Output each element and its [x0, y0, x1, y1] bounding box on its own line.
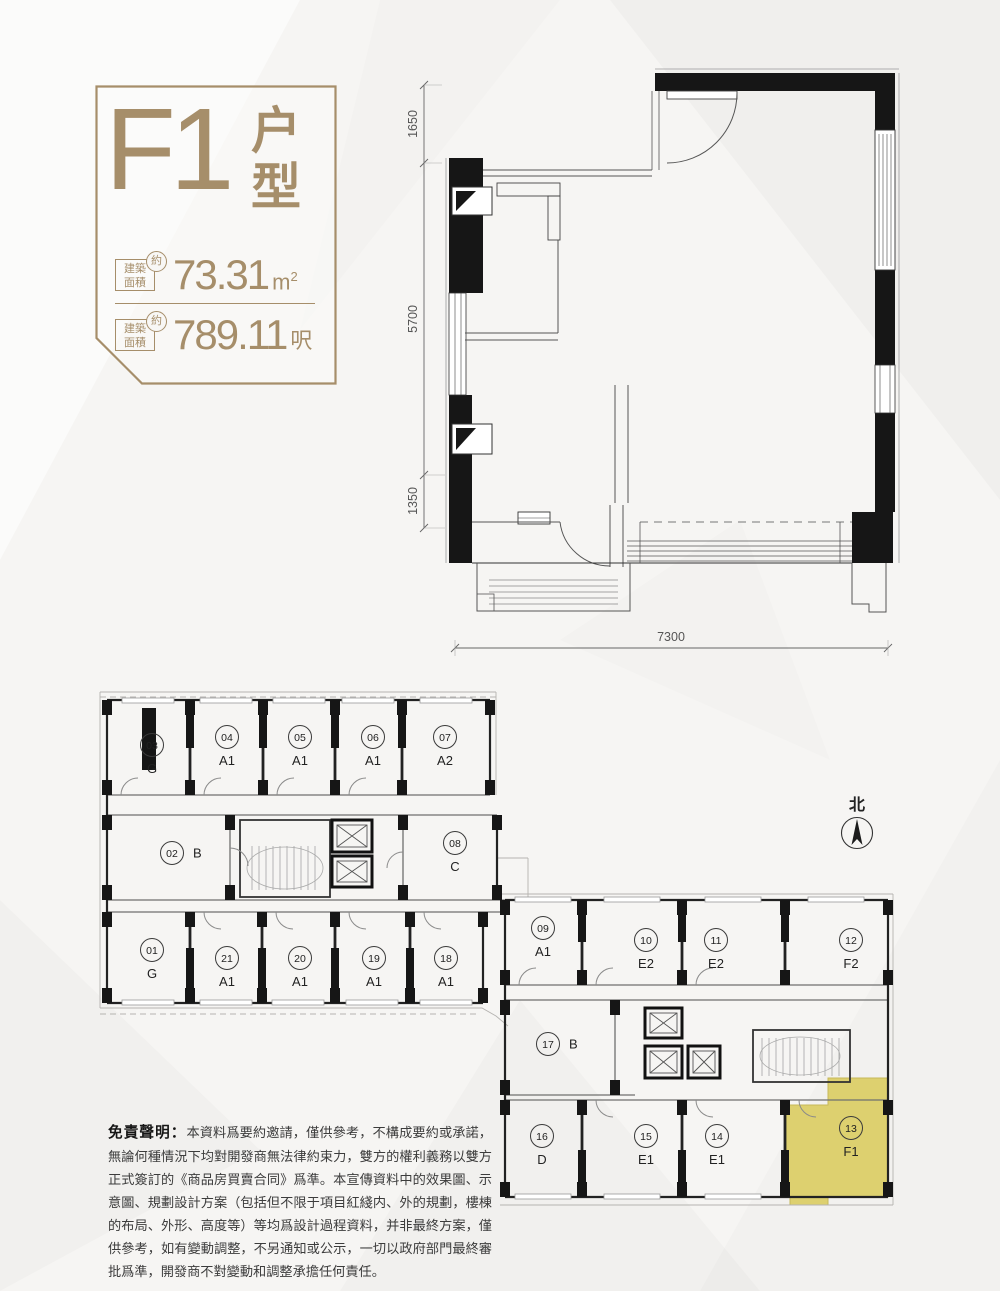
unit-label-12: 12F2 [840, 929, 863, 972]
svg-text:北: 北 [849, 796, 865, 814]
unit-label-21: 21A1 [216, 947, 239, 990]
svg-text:G: G [147, 966, 157, 981]
unit-label-01: 01G [141, 939, 164, 982]
area-row-imperial: 建築 面積 約 789.11 呎 [115, 311, 319, 359]
structural-walls [449, 73, 895, 563]
unit-floorplan: 1650 5700 1350 7300 [405, 60, 915, 660]
svg-text:D: D [537, 1152, 546, 1167]
svg-text:01: 01 [146, 945, 158, 957]
unit-label-17: 17B [537, 1033, 578, 1056]
unit-type-char-1: 户 [251, 103, 301, 159]
svg-text:09: 09 [537, 923, 549, 935]
svg-text:F1: F1 [843, 1144, 858, 1159]
svg-text:20: 20 [294, 953, 306, 965]
highlighted-unit-area [785, 1078, 888, 1205]
unit-label-04: 04A1 [216, 726, 239, 769]
area-divider [115, 303, 315, 304]
svg-text:C: C [450, 859, 459, 874]
svg-text:12: 12 [845, 935, 857, 947]
svg-text:A1: A1 [366, 974, 382, 989]
balcony-glazing [472, 522, 852, 563]
unit-label-02: 02B [161, 842, 202, 865]
svg-text:03: 03 [146, 740, 158, 752]
north-arrow: 北 [842, 796, 873, 849]
unit-label-10: 10E2 [635, 929, 658, 972]
svg-text:05: 05 [294, 732, 306, 744]
svg-text:A2: A2 [437, 753, 453, 768]
dim-bottom-7300: 7300 [657, 630, 685, 644]
svg-text:E2: E2 [638, 956, 654, 971]
area-label-box-2: 建築 面積 約 [115, 319, 155, 351]
svg-text:02: 02 [166, 848, 178, 860]
unit-label-07: 07A2 [434, 726, 457, 769]
svg-text:A1: A1 [219, 753, 235, 768]
disclaimer-body: 本資料爲要約邀請，僅供參考，不構成要約或承諾，無論何種情況下均對開發商無法律約束… [108, 1125, 492, 1279]
dimension-lines [420, 81, 892, 656]
svg-text:A1: A1 [365, 753, 381, 768]
dimension-labels: 1650 5700 1350 7300 [406, 110, 685, 644]
svg-text:04: 04 [221, 732, 233, 744]
svg-text:A1: A1 [292, 753, 308, 768]
svg-text:E1: E1 [709, 1152, 725, 1167]
ac-platform [477, 563, 886, 612]
svg-text:14: 14 [711, 1131, 723, 1143]
area-label-box: 建築 面積 約 [115, 259, 155, 291]
svg-text:13: 13 [845, 1123, 857, 1135]
svg-text:E1: E1 [638, 1152, 654, 1167]
svg-text:06: 06 [367, 732, 379, 744]
unit-name: F1 [105, 91, 228, 207]
windows [449, 130, 895, 524]
unit-label-20: 20A1 [289, 947, 312, 990]
area-label-line2: 面積 [116, 276, 154, 290]
outer-face-lines [446, 69, 899, 563]
svg-text:08: 08 [449, 838, 461, 850]
unit-label-08: 08C [444, 832, 467, 875]
svg-text:07: 07 [439, 732, 451, 744]
svg-text:15: 15 [640, 1131, 652, 1143]
title-block: F1 户 型 建築 面積 約 73.31 m2 建築 面積 約 789.11 呎 [95, 85, 337, 385]
area-row-metric: 建築 面積 約 73.31 m2 [115, 251, 319, 299]
interior-partitions [465, 170, 652, 567]
disclaimer-heading: 免責聲明： [108, 1125, 186, 1141]
approx-badge: 約 [146, 251, 167, 272]
unit-label-06: 06A1 [362, 726, 385, 769]
dim-left-5700: 5700 [406, 305, 420, 333]
entry-door [652, 91, 737, 170]
bedroom-door-arc [560, 522, 610, 566]
unit-label-05: 05A1 [289, 726, 312, 769]
svg-text:21: 21 [221, 953, 233, 965]
svg-text:B: B [193, 846, 202, 861]
svg-text:19: 19 [368, 953, 380, 965]
area-label-line2: 面積 [116, 336, 154, 350]
unit-label-11: 11E2 [705, 929, 728, 972]
svg-text:16: 16 [536, 1131, 548, 1143]
svg-text:17: 17 [542, 1039, 554, 1051]
svg-text:A1: A1 [438, 974, 454, 989]
unit-label-16: 16D [531, 1125, 554, 1168]
svg-text:10: 10 [640, 935, 652, 947]
unit-label-19: 19A1 [363, 947, 386, 990]
unit-label-14: 14E1 [706, 1125, 729, 1168]
svg-text:A1: A1 [219, 974, 235, 989]
svg-text:G: G [147, 761, 157, 776]
unit-label-09: 09A1 [532, 917, 555, 960]
unit-label-18: 18A1 [435, 947, 458, 990]
svg-text:A1: A1 [292, 974, 308, 989]
unit-label-15: 15E1 [635, 1125, 658, 1168]
svg-text:A1: A1 [535, 944, 551, 959]
svg-text:B: B [569, 1037, 578, 1052]
approx-badge-2: 約 [146, 311, 167, 332]
dim-left-1650: 1650 [406, 110, 420, 138]
unit-type-label: 户 型 [251, 103, 301, 215]
unit-type-char-2: 型 [251, 159, 301, 215]
svg-text:E2: E2 [708, 956, 724, 971]
area-value-imperial: 789.11 [173, 311, 286, 359]
svg-text:11: 11 [711, 935, 722, 947]
dim-left-1350: 1350 [406, 487, 420, 515]
svg-text:18: 18 [440, 953, 452, 965]
page: F1 户 型 建築 面積 約 73.31 m2 建築 面積 約 789.11 呎 [0, 0, 1000, 1291]
area-value-metric: 73.31 [173, 251, 268, 299]
area-unit-metric: m2 [272, 269, 298, 299]
svg-text:F2: F2 [843, 956, 858, 971]
area-unit-imperial: 呎 [290, 323, 312, 359]
disclaimer: 免責聲明：本資料爲要約邀請，僅供參考，不構成要約或承諾，無論何種情況下均對開發商… [108, 1121, 492, 1284]
